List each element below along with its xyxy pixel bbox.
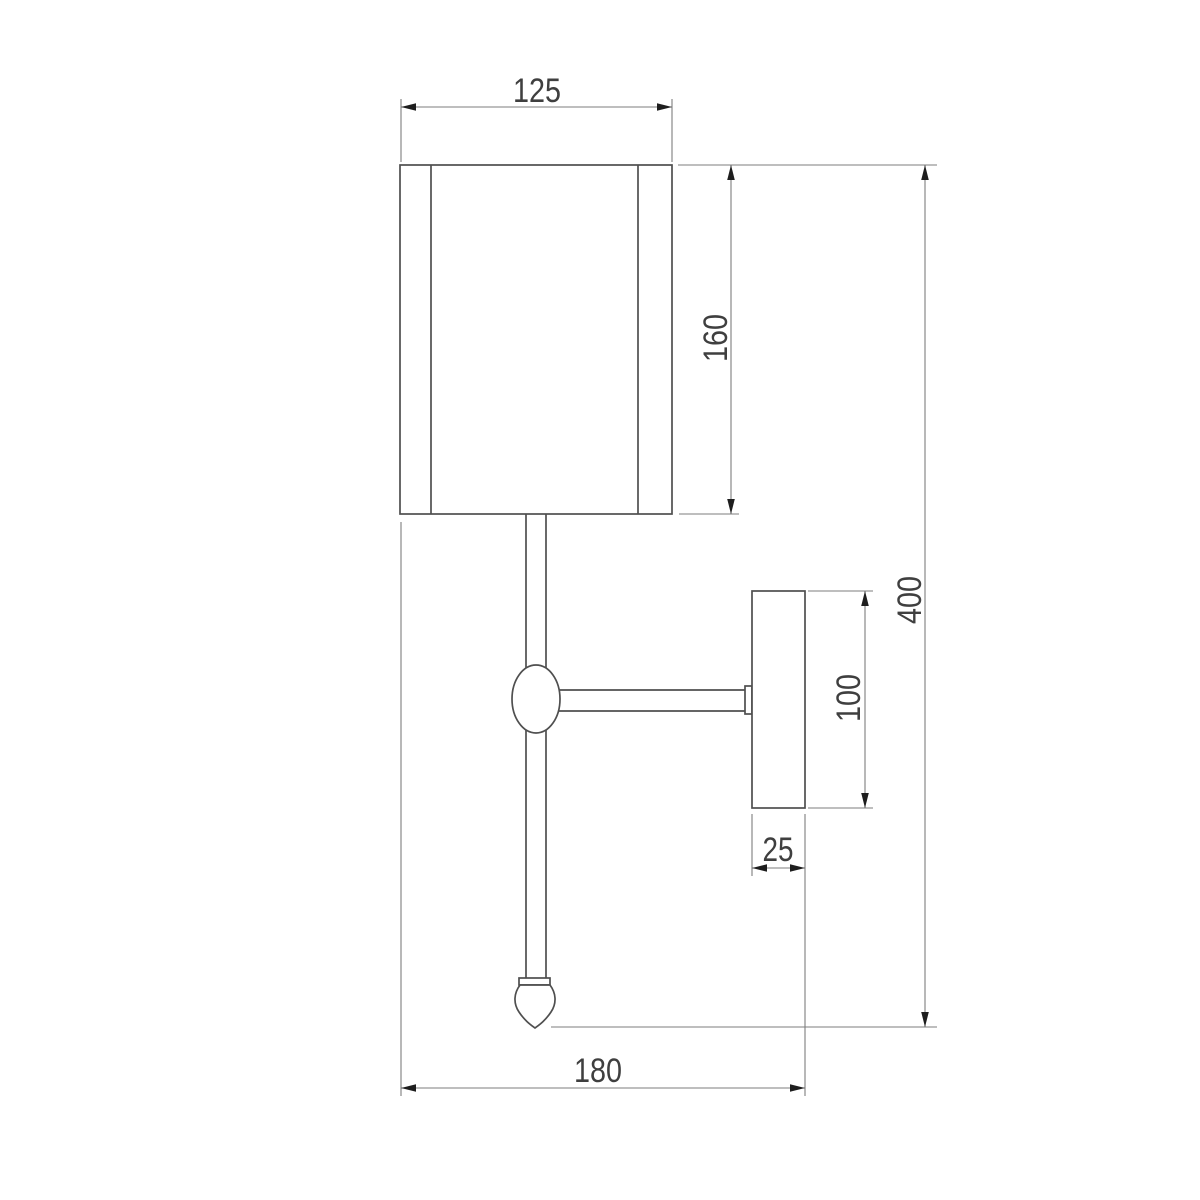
- technical-drawing-canvas: 125 160 400: [0, 0, 1200, 1200]
- dim-label-shade-width: 125: [513, 72, 561, 110]
- dim-shade-width: 125: [401, 72, 672, 162]
- dim-plate-depth: 25: [752, 814, 805, 1096]
- arrow-up-icon: [861, 591, 869, 606]
- arrow-right-icon: [790, 1084, 805, 1092]
- arrow-down-icon: [727, 499, 735, 514]
- arrow-left-icon: [401, 103, 416, 111]
- dim-label-plate-depth: 25: [763, 831, 794, 869]
- dim-total-height: 400: [551, 165, 937, 1027]
- dim-shade-height: 160: [679, 165, 739, 514]
- dim-label-total-height: 400: [891, 576, 929, 624]
- finial-teardrop: [515, 985, 555, 1028]
- arrow-up-icon: [727, 165, 735, 180]
- arrow-up-icon: [921, 165, 929, 180]
- mounting-arm: [554, 690, 747, 711]
- arrow-down-icon: [921, 1012, 929, 1027]
- dim-label-shade-height: 160: [697, 314, 735, 362]
- arrow-left-icon: [401, 1084, 416, 1092]
- dim-plate-height: 100: [808, 591, 873, 808]
- dim-total-depth: 180: [401, 522, 805, 1096]
- wall-plate: [752, 591, 805, 808]
- stem-joint-oval: [512, 665, 560, 733]
- finial: [515, 978, 555, 1028]
- arm-connector: [745, 686, 752, 714]
- lamp-stem: [526, 514, 546, 979]
- drawing-svg: 125 160 400: [0, 0, 1200, 1200]
- wall-lamp-outline: [400, 165, 805, 1028]
- dim-label-plate-height: 100: [830, 674, 868, 722]
- arrow-right-icon: [657, 103, 672, 111]
- dimensions: 125 160 400: [401, 72, 937, 1096]
- arrow-down-icon: [861, 793, 869, 808]
- dim-label-total-depth: 180: [574, 1052, 622, 1090]
- lamp-shade: [400, 165, 672, 514]
- finial-collar: [519, 978, 550, 985]
